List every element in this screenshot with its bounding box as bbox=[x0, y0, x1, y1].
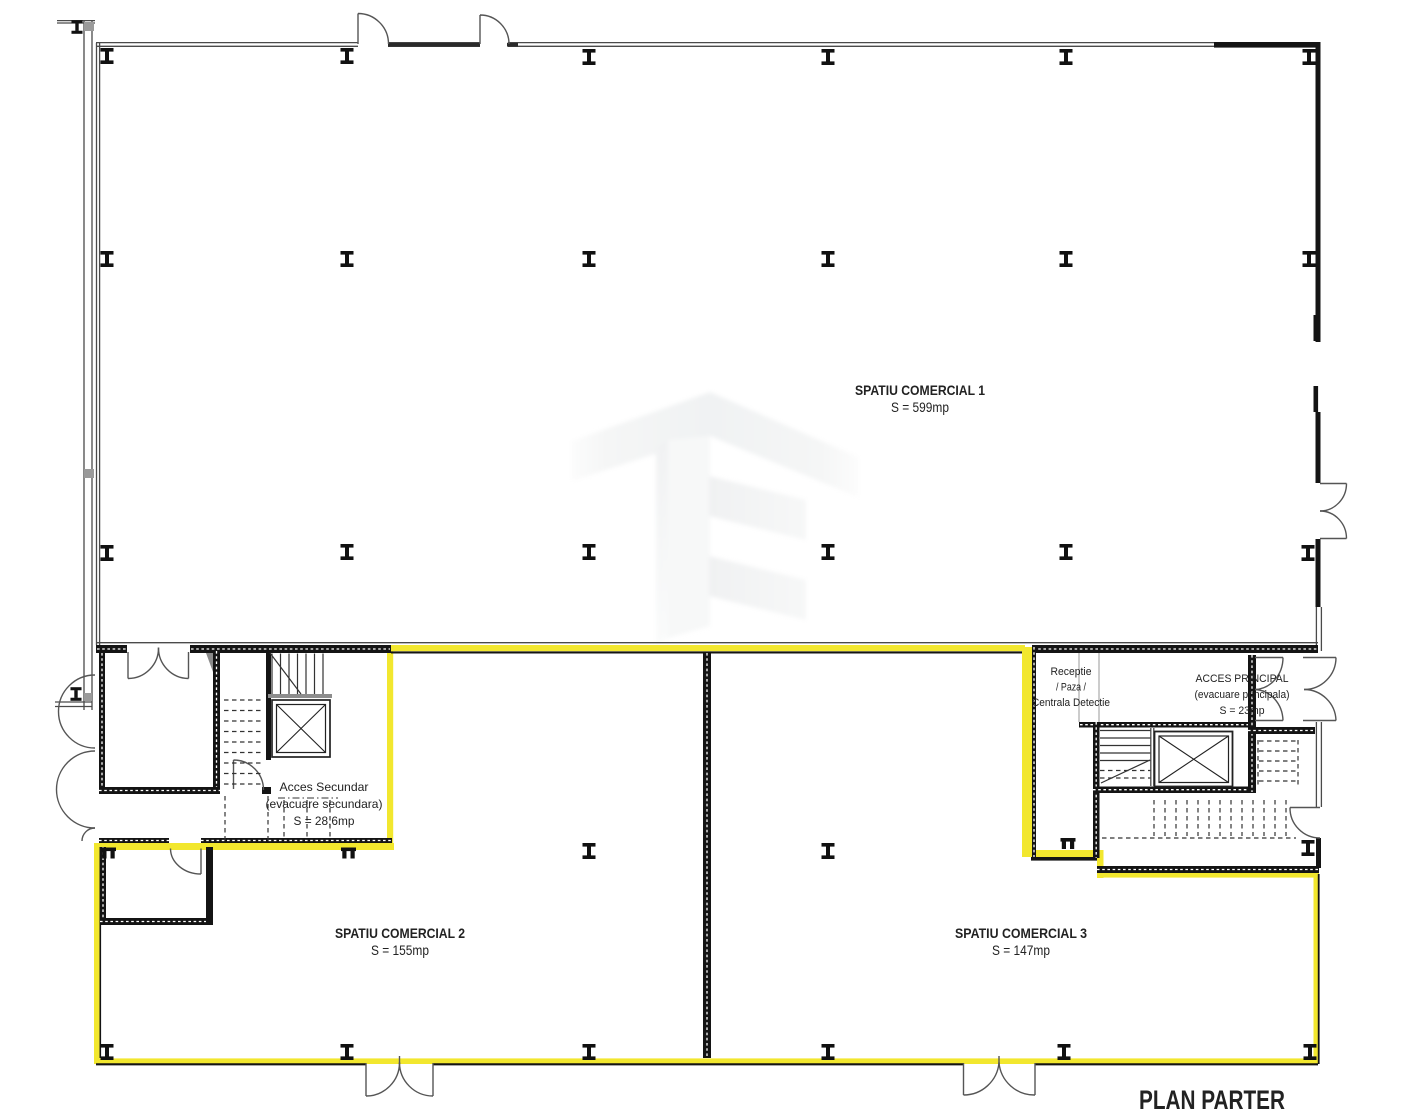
svg-text:(evacuare principala): (evacuare principala) bbox=[1195, 689, 1290, 701]
svg-text:SPATIU COMERCIAL 1: SPATIU COMERCIAL 1 bbox=[855, 382, 985, 398]
svg-text:Receptie: Receptie bbox=[1051, 666, 1092, 678]
svg-text:(evacuare secundara): (evacuare secundara) bbox=[266, 797, 383, 811]
svg-text:/ Paza /: / Paza / bbox=[1056, 682, 1086, 694]
svg-text:SPATIU COMERCIAL 2: SPATIU COMERCIAL 2 bbox=[335, 925, 465, 941]
svg-text:ACCES PRINCIPAL: ACCES PRINCIPAL bbox=[1196, 673, 1289, 685]
svg-text:S = 28,6mp: S = 28,6mp bbox=[294, 814, 355, 828]
svg-text:SPATIU COMERCIAL 3: SPATIU COMERCIAL 3 bbox=[955, 925, 1087, 941]
svg-text:S = 147mp: S = 147mp bbox=[992, 943, 1050, 958]
svg-text:S = 23mp: S = 23mp bbox=[1220, 705, 1265, 717]
svg-text:S = 599mp: S = 599mp bbox=[891, 400, 949, 415]
svg-text:S = 155mp: S = 155mp bbox=[371, 943, 429, 958]
svg-text:PLAN PARTER: PLAN PARTER bbox=[1139, 1085, 1285, 1115]
svg-text:Centrala Detectie: Centrala Detectie bbox=[1032, 697, 1110, 709]
svg-text:Acces Secundar: Acces Secundar bbox=[280, 780, 369, 794]
